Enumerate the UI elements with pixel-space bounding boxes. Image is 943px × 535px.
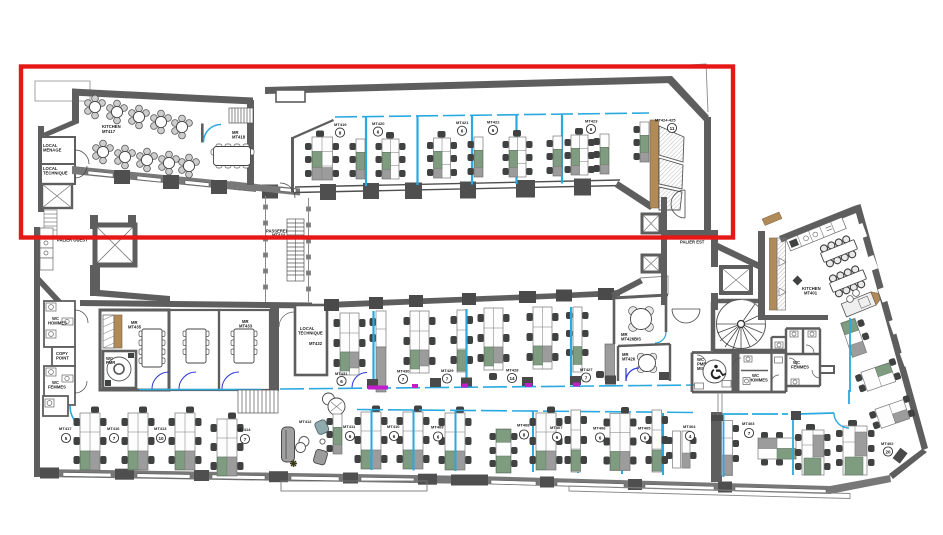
svg-text:6: 6 xyxy=(461,129,464,134)
svg-text:MT413: MT413 xyxy=(154,426,167,431)
svg-text:PMR: PMR xyxy=(106,360,115,365)
svg-text:MT423: MT423 xyxy=(585,119,598,124)
svg-text:MT422: MT422 xyxy=(487,120,500,125)
svg-text:6: 6 xyxy=(599,435,602,440)
svg-text:MT420: MT420 xyxy=(372,121,385,126)
svg-text:MT433: MT433 xyxy=(239,324,253,329)
svg-text:MT430: MT430 xyxy=(397,369,410,374)
svg-text:MT411: MT411 xyxy=(343,424,356,429)
svg-text:6: 6 xyxy=(349,434,352,439)
svg-text:5: 5 xyxy=(65,436,68,441)
svg-text:MT429: MT429 xyxy=(441,368,454,373)
svg-text:6: 6 xyxy=(340,379,343,384)
svg-text:MT424-425: MT424-425 xyxy=(655,118,676,123)
svg-text:7: 7 xyxy=(585,375,588,380)
svg-text:MT408: MT408 xyxy=(517,423,530,428)
svg-text:MT405: MT405 xyxy=(638,426,651,431)
svg-text:8: 8 xyxy=(339,130,342,135)
svg-text:14: 14 xyxy=(509,376,515,381)
svg-text:MT431: MT431 xyxy=(335,371,348,376)
svg-text:6: 6 xyxy=(590,127,593,132)
svg-text:MT414: MT414 xyxy=(238,427,251,432)
svg-text:MT402: MT402 xyxy=(881,441,894,446)
svg-text:HOMMES: HOMMES xyxy=(48,321,67,326)
svg-text:MT421: MT421 xyxy=(456,120,469,125)
svg-text:MT409: MT409 xyxy=(431,425,444,430)
svg-text:HOMMES: HOMMES xyxy=(749,378,768,383)
svg-text:10: 10 xyxy=(158,436,164,441)
svg-text:6: 6 xyxy=(377,129,380,134)
svg-text:MT432: MT432 xyxy=(309,341,323,346)
svg-text:6: 6 xyxy=(556,435,559,440)
svg-text:7: 7 xyxy=(113,436,116,441)
svg-text:POINT: POINT xyxy=(56,356,69,361)
svg-text:MT417: MT417 xyxy=(102,129,116,134)
svg-text:4: 4 xyxy=(689,434,692,439)
svg-text:PALIER EST: PALIER EST xyxy=(680,240,705,245)
svg-text:MT435: MT435 xyxy=(128,325,142,330)
svg-text:MT427: MT427 xyxy=(580,367,593,372)
svg-text:MT401: MT401 xyxy=(804,291,818,296)
svg-text:MT403: MT403 xyxy=(742,421,755,426)
svg-text:MT417: MT417 xyxy=(59,426,72,431)
svg-text:20: 20 xyxy=(885,449,891,454)
svg-text:7: 7 xyxy=(244,437,247,442)
svg-text:MT426BIS: MT426BIS xyxy=(621,337,641,342)
svg-text:MT412: MT412 xyxy=(299,419,312,424)
svg-text:MT418: MT418 xyxy=(232,135,246,140)
svg-text:MT416: MT416 xyxy=(107,426,120,431)
svg-text:11: 11 xyxy=(670,126,675,131)
svg-text:MT407: MT407 xyxy=(550,425,563,430)
svg-text:7: 7 xyxy=(446,376,449,381)
svg-text:MENAGE: MENAGE xyxy=(43,148,62,153)
svg-text:MT404: MT404 xyxy=(683,424,696,429)
svg-text:7: 7 xyxy=(402,377,405,382)
svg-text:MT406: MT406 xyxy=(593,426,606,431)
svg-text:6: 6 xyxy=(393,434,396,439)
svg-text:MT426: MT426 xyxy=(622,357,636,362)
svg-text:6: 6 xyxy=(492,128,495,133)
svg-text:MT419: MT419 xyxy=(334,122,347,127)
svg-text:FEMMES: FEMMES xyxy=(791,365,809,370)
svg-text:MT428: MT428 xyxy=(506,368,519,373)
svg-text:7: 7 xyxy=(748,431,751,436)
svg-text:TECHNIQUE: TECHNIQUE xyxy=(298,331,323,336)
svg-text:FEMMES: FEMMES xyxy=(48,385,66,390)
svg-text:6: 6 xyxy=(644,435,647,440)
svg-text:6: 6 xyxy=(437,434,440,439)
svg-text:MT410: MT410 xyxy=(387,424,400,429)
svg-text:8: 8 xyxy=(523,432,526,437)
svg-text:TECHNIQUE: TECHNIQUE xyxy=(43,171,68,176)
